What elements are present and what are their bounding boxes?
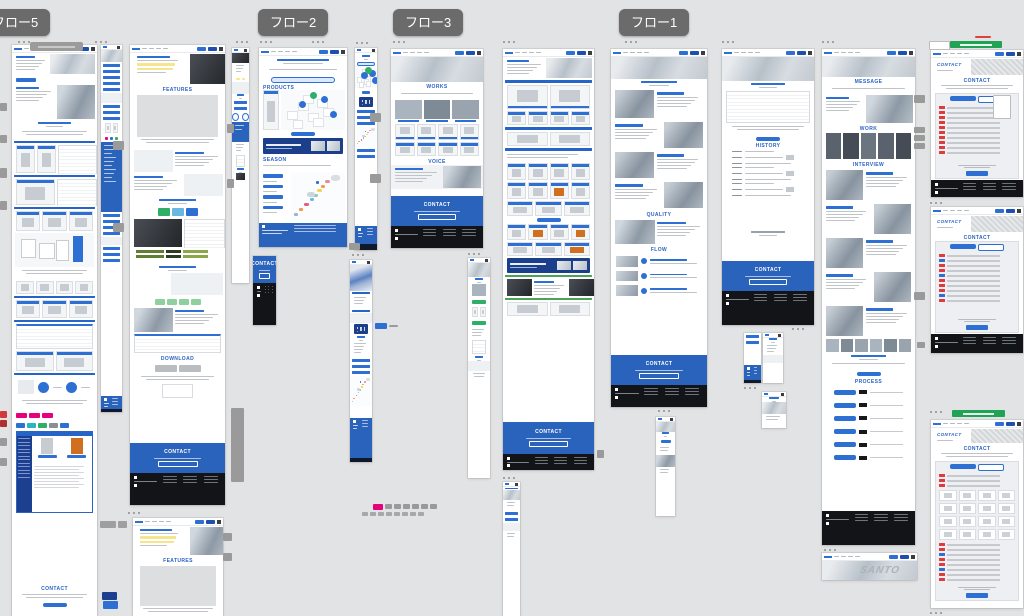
mini-ui-fragment (637, 52, 642, 53)
frame-flow3-detail-mobile[interactable] (468, 258, 490, 478)
mini-ui-fragment (615, 152, 654, 178)
annotation-chip[interactable] (113, 141, 124, 150)
annotation-chip[interactable] (914, 143, 925, 149)
mini-ui-fragment (353, 420, 356, 423)
mini-ui-fragment (294, 225, 337, 226)
mini-ui-fragment (664, 122, 703, 148)
mini-ui-fragment (263, 165, 331, 166)
mini-ui-fragment (352, 359, 370, 362)
mini-ui-fragment (367, 228, 374, 242)
mini-ui-fragment (983, 337, 1000, 350)
annotation-chip[interactable] (993, 95, 1011, 119)
frame-flow1-product-mobile[interactable] (503, 482, 520, 616)
mini-ui-fragment (662, 432, 669, 434)
mini-product-card (564, 242, 590, 256)
mini-ui-fragment: CONTACT (424, 202, 451, 209)
mini-ui-fragment (48, 306, 60, 314)
mini-ui-fragment (277, 59, 330, 61)
mini-ui-fragment (841, 339, 854, 352)
mini-image (350, 265, 372, 291)
mini-interview-row (822, 168, 915, 202)
mini-ui-fragment (963, 343, 976, 344)
mini-ui-fragment (732, 41, 734, 43)
annotation-chip[interactable] (100, 521, 116, 528)
mini-ui-fragment (939, 578, 1015, 581)
flow-label-2[interactable]: フロー2 (258, 9, 328, 36)
mini-ui-fragment (793, 300, 806, 301)
annotation-chip[interactable] (118, 521, 127, 528)
mini-ui-fragment (154, 458, 202, 459)
mini-ui-fragment (894, 517, 907, 518)
mini-ui-fragment (930, 411, 932, 413)
mini-ui-fragment (551, 167, 568, 180)
annotation-chip[interactable] (403, 504, 410, 509)
mini-ui-fragment (874, 514, 887, 515)
mini-product-card (507, 132, 548, 146)
frame-flow5-features-page-2[interactable]: FEATURES (133, 518, 223, 616)
annotation-chip[interactable] (223, 533, 232, 541)
mini-ui-fragment (551, 133, 590, 145)
annotation-chip[interactable] (223, 553, 232, 561)
frame-menu-dots[interactable] (930, 612, 942, 614)
frame-menu-dots[interactable] (930, 202, 942, 204)
mini-ui-fragment (362, 104, 363, 105)
mini-menu-icon (1017, 422, 1021, 426)
annotation-chip[interactable] (914, 95, 925, 103)
annotation-chip[interactable] (389, 325, 398, 327)
frame-menu-dots[interactable] (792, 328, 804, 330)
mini-section-bar (14, 296, 95, 298)
mini-ui-fragment (866, 251, 899, 252)
mini-ui-fragment (21, 239, 36, 258)
mini-ui-fragment (474, 310, 476, 315)
frame-menu-dots[interactable] (658, 410, 670, 412)
annotation-chip[interactable] (362, 512, 368, 516)
mini-ui-fragment (357, 327, 358, 329)
mini-ui-fragment (237, 168, 243, 170)
mini-ui-fragment (312, 41, 314, 43)
mini-ui-fragment (529, 167, 546, 180)
map-region (362, 384, 364, 386)
frame-menu-dots[interactable] (503, 477, 515, 479)
frame-flow5-detail-mobile[interactable] (232, 48, 249, 283)
mini-ui-fragment (464, 147, 474, 153)
mini-ui-fragment (657, 226, 701, 227)
mini-ui-fragment (940, 202, 942, 204)
mini-ui-fragment (983, 532, 991, 537)
mini-ui-fragment (512, 116, 521, 122)
frame-menu-dots[interactable] (352, 254, 364, 256)
frame-title-tab[interactable] (30, 42, 83, 51)
mini-ui-fragment (866, 316, 903, 317)
mini-ui-fragment (834, 400, 903, 410)
frame-flow1-company-mobile-footer[interactable] (744, 333, 761, 383)
mini-ui-fragment (995, 52, 1004, 56)
frame-flow2-top-mobile[interactable] (355, 48, 377, 250)
annotation-chip[interactable] (227, 179, 234, 188)
frame-menu-dots[interactable] (356, 42, 368, 44)
mini-ui-fragment (143, 608, 213, 609)
mini-menu-icon (778, 334, 781, 337)
mini-ui-fragment (287, 111, 298, 120)
mini-section-title: FEATURES (133, 556, 223, 566)
mini-interview-row (822, 202, 915, 236)
mini-ui-fragment (939, 474, 1015, 477)
annotation-chip[interactable] (103, 601, 118, 609)
mini-ui-fragment (786, 171, 794, 176)
mini-ui-fragment (959, 503, 977, 514)
mini-ui-fragment (554, 457, 567, 458)
mini-ui-fragment (186, 208, 198, 216)
mini-ui-fragment (155, 299, 165, 305)
frame-menu-dots[interactable] (722, 41, 734, 43)
mini-ui-fragment (947, 280, 1000, 282)
mini-product-card (105, 123, 111, 133)
mini-ui-fragment (330, 50, 339, 54)
mini-ui-fragment (998, 490, 1016, 501)
annotation-chip[interactable] (597, 450, 604, 458)
mini-ui-fragment (574, 463, 587, 464)
mini-ui-fragment (175, 162, 208, 163)
map-region (310, 198, 314, 201)
frame-flow1-about-page[interactable]: QUALITYFLOWCONTACT (611, 49, 707, 407)
mini-ui-fragment (43, 304, 65, 318)
annotation-chip[interactable] (975, 36, 991, 38)
frame-flow2-top-page[interactable]: PRODUCTSSEASON (259, 48, 347, 247)
mini-ui-fragment (183, 476, 197, 477)
mini-product-card (507, 201, 533, 216)
annotation-chip[interactable] (386, 512, 392, 516)
annotation-chip[interactable] (375, 323, 387, 329)
mini-menu-icon (117, 46, 120, 49)
mini-ui-fragment (615, 129, 657, 130)
annotation-chip[interactable] (370, 113, 381, 122)
mini-ui-fragment (615, 396, 618, 399)
mini-ui-fragment (16, 94, 47, 95)
mini-ui-fragment (822, 41, 824, 43)
mini-product-card (16, 300, 40, 318)
mini-ui-fragment (947, 290, 1000, 292)
frame-menu-dots[interactable] (95, 41, 107, 43)
mini-interview-row (822, 270, 915, 304)
mini-ui-fragment (266, 148, 292, 149)
mini-ui-fragment (508, 477, 510, 479)
mini-ui-fragment (843, 133, 858, 159)
flow-label-1[interactable]: フロー1 (619, 9, 689, 36)
mini-ui-fragment (939, 244, 1015, 251)
mini-ui-fragment (357, 122, 375, 125)
mini-ui-fragment (507, 58, 544, 78)
mini-ui-fragment (1002, 183, 1015, 184)
mini-ui-fragment (939, 319, 1015, 323)
mini-product-row (503, 162, 594, 181)
frame-flow5-top-page[interactable]: CONTACT (12, 45, 97, 616)
mini-ui-fragment (764, 393, 768, 395)
mini-ui-fragment (939, 274, 945, 277)
frame-menu-dots[interactable] (625, 41, 637, 43)
frame-flow1-recruit-page[interactable]: MESSAGEWORKINTERVIEWPROCESS (822, 49, 915, 545)
mini-heading-lines (822, 353, 915, 361)
annotation-chip[interactable] (412, 504, 419, 509)
annotation-chip[interactable] (370, 174, 381, 183)
mini-ui-fragment (137, 72, 166, 73)
mini-header (931, 50, 1023, 58)
mini-ui-fragment (754, 297, 767, 298)
mini-text-lines (12, 592, 97, 602)
mini-ui-fragment (834, 429, 856, 434)
mini-ui-fragment (354, 349, 363, 350)
frame-menu-dots[interactable] (822, 41, 834, 43)
mini-ui-fragment (983, 493, 991, 498)
annotation-chip[interactable] (0, 168, 7, 178)
mini-ui-fragment (171, 273, 223, 295)
mini-ui-fragment (554, 463, 567, 464)
annotation-chip[interactable] (385, 504, 392, 509)
mini-ui-fragment (166, 250, 181, 253)
mini-ui-fragment (855, 514, 868, 515)
annotation-chip[interactable] (113, 223, 124, 232)
flow-label-5[interactable]: フロー5 (0, 9, 50, 36)
mini-indicator-bars (130, 248, 225, 264)
annotation-chip[interactable] (0, 420, 7, 427)
mini-heading-lines (130, 197, 225, 205)
mini-ui-fragment (536, 246, 560, 256)
annotation-chip[interactable] (421, 504, 428, 509)
frame-flow1-company-page[interactable]: HISTORYCONTACT (722, 49, 814, 325)
annotation-chip[interactable] (914, 127, 925, 133)
frame-menu-dots[interactable] (393, 41, 405, 43)
mini-ui-fragment (935, 188, 958, 189)
mini-ui-fragment (939, 121, 945, 124)
mini-ui-fragment (163, 476, 180, 502)
frame-flow2-detail-mobile[interactable] (350, 260, 372, 462)
frame-flow5-footer-mobile[interactable]: CONTACT (253, 256, 276, 325)
annotation-chip[interactable] (914, 292, 925, 300)
mini-ui-fragment (826, 217, 859, 218)
mini-ui-fragment (443, 229, 460, 245)
mini-ui-fragment (43, 603, 67, 607)
frame-flow1-recruit-hero[interactable]: SANTO (822, 553, 917, 580)
mini-ui-fragment (533, 188, 542, 196)
mini-ui-fragment (939, 254, 1015, 257)
mini-ui-fragment (138, 512, 140, 514)
mini-ui-fragment (826, 522, 829, 525)
mini-ui-fragment (574, 457, 587, 458)
mini-ui-fragment (263, 206, 283, 210)
annotation-chip[interactable] (0, 438, 7, 446)
mini-menu-icon (219, 47, 223, 51)
mini-ui-fragment (939, 578, 945, 581)
map-region (294, 213, 298, 216)
frame-menu-dots[interactable] (468, 253, 480, 255)
mini-footer-blue (259, 223, 347, 247)
annotation-chip[interactable] (402, 512, 408, 516)
mini-ui-fragment (112, 398, 119, 407)
mini-ui-fragment (104, 169, 116, 170)
mini-ui-fragment (751, 231, 786, 233)
mini-ui-fragment (939, 111, 945, 114)
mini-product-card (571, 224, 590, 240)
mini-ui-fragment (38, 382, 49, 393)
frame-menu-dots[interactable] (236, 41, 248, 43)
mini-ui-fragment (257, 286, 260, 289)
mini-ui-fragment (732, 151, 742, 152)
mini-ui-fragment (722, 237, 814, 261)
mini-ui-fragment (393, 41, 395, 43)
mini-ui-fragment (826, 285, 859, 286)
annotation-chip[interactable] (373, 504, 383, 510)
mini-ui-fragment (551, 115, 568, 125)
frame-contact-product-form[interactable]: CONTACTCONTACT (931, 420, 1023, 608)
mini-ui-fragment (650, 288, 702, 293)
annotation-chip[interactable] (394, 504, 401, 509)
mini-chip-row (130, 296, 225, 307)
annotation-chip[interactable] (952, 410, 1005, 417)
mini-ui-fragment (136, 250, 219, 253)
frame-menu-dots[interactable] (930, 411, 942, 413)
mini-ui-fragment (263, 181, 277, 182)
mini-ui-fragment (34, 472, 84, 473)
mini-ui-fragment (896, 133, 911, 159)
frame-contact-confirm[interactable]: CONTACTCONTACT (931, 207, 1023, 353)
mini-ui-fragment (26, 134, 82, 135)
mini-ui-fragment (957, 423, 962, 424)
annotation-chip[interactable] (950, 41, 1002, 48)
design-canvas: フロー5 フロー2 フロー3 フロー1 CONTACTFEATURESDOWNL… (0, 0, 1024, 616)
frame-menu-dots[interactable] (824, 549, 836, 551)
annotation-chip[interactable] (0, 135, 7, 143)
mini-ui-fragment (559, 90, 580, 102)
annotation-chip[interactable] (430, 504, 437, 509)
mini-ui-fragment (41, 438, 53, 454)
frame-menu-dots[interactable] (744, 387, 756, 389)
mini-image (101, 93, 122, 103)
mini-ui-fragment: FEATURES (130, 85, 225, 94)
mini-ui-fragment (824, 549, 826, 551)
mini-ui-fragment (513, 247, 526, 253)
mini-ui-fragment (899, 339, 912, 352)
mini-section-bar (14, 373, 95, 375)
annotation-chip[interactable] (231, 408, 244, 482)
mini-ui-fragment (983, 183, 1000, 194)
mini-ui-fragment (529, 115, 546, 125)
mini-ui-fragment (939, 548, 1015, 551)
mini-ui-fragment (237, 94, 243, 96)
mini-ui-fragment (615, 192, 653, 193)
mini-ui-fragment (354, 303, 363, 304)
mini-ui-fragment (16, 63, 42, 64)
mini-ui-fragment (754, 294, 771, 322)
mini-ui-fragment (322, 41, 324, 43)
annotation-chip[interactable] (0, 201, 7, 210)
frame-flow1-about-mobile[interactable] (656, 417, 675, 516)
mini-ui-fragment (939, 131, 1015, 134)
mini-ui-fragment (657, 162, 695, 163)
mini-ui-fragment (826, 272, 871, 302)
frame-flow1-company-mobile-2[interactable] (762, 392, 786, 428)
frame-menu-dots[interactable] (312, 41, 324, 43)
mini-table (472, 340, 486, 354)
mini-ui-fragment (939, 553, 1015, 556)
mini-ui-fragment (766, 419, 778, 420)
mini-ui-fragment (472, 321, 486, 325)
frame-flow3-top-page[interactable]: WORKSVOICECONTACT (391, 49, 483, 248)
frame-menu-dots[interactable] (260, 41, 272, 43)
annotation-chip[interactable] (0, 103, 7, 111)
mini-ui-fragment (364, 327, 365, 332)
mini-table (134, 334, 221, 353)
mini-ui-fragment (874, 520, 887, 521)
mini-blue-block (232, 122, 249, 142)
annotation-chip[interactable] (349, 243, 360, 250)
flow-label-3[interactable]: フロー3 (393, 9, 463, 36)
annotation-chip[interactable] (0, 458, 7, 466)
mini-ui-fragment (134, 186, 167, 187)
annotation-chip[interactable] (227, 124, 234, 133)
annotation-chip[interactable] (917, 342, 925, 348)
mini-ui-fragment (365, 100, 366, 105)
frame-menu-dots[interactable] (503, 41, 515, 43)
annotation-chip[interactable] (394, 512, 400, 516)
mini-ui-fragment (747, 372, 750, 373)
mini-text-lines (722, 124, 814, 136)
annotation-chip[interactable] (378, 512, 384, 516)
mini-ui-fragment (367, 228, 373, 229)
frame-menu-dots[interactable] (18, 41, 30, 43)
mini-ui-fragment (517, 135, 538, 142)
annotation-chip[interactable] (914, 135, 925, 141)
mini-ui-fragment (522, 52, 527, 53)
mini-photo-row (468, 283, 490, 297)
mini-section-title: CONTACT (931, 444, 1023, 451)
mini-ui-fragment (16, 54, 48, 74)
mini-ui-fragment (134, 476, 160, 502)
mini-ui-fragment (576, 188, 585, 196)
frame-flow5-features-page[interactable]: FEATURESDOWNLOADCONTACT (130, 45, 225, 505)
annotation-chip[interactable] (370, 512, 376, 516)
frame-contact-input[interactable]: CONTACTCONTACT (931, 50, 1023, 197)
mini-ui-fragment (183, 255, 208, 258)
mini-ui-fragment (834, 413, 903, 423)
mini-text-lines (822, 361, 915, 370)
mini-ui-fragment (572, 228, 589, 240)
mini-ui-fragment (352, 371, 370, 374)
mini-ui-fragment (265, 286, 266, 325)
mini-ui-fragment (613, 52, 621, 54)
mini-ui-fragment (421, 127, 431, 134)
frame-flow1-company-mobile[interactable] (763, 333, 783, 383)
mini-ui-fragment (190, 527, 223, 555)
mini-ui-fragment (964, 167, 991, 168)
mini-ui-fragment (103, 232, 120, 235)
mini-ui-fragment (67, 455, 86, 458)
mini-ui-fragment (246, 41, 248, 43)
annotation-chip[interactable] (102, 592, 117, 600)
mini-ui-fragment (939, 503, 957, 514)
mini-heading-lines (12, 120, 97, 129)
frame-menu-dots[interactable] (128, 512, 140, 514)
annotation-chip[interactable] (418, 512, 424, 516)
mini-ui-fragment (664, 182, 703, 208)
annotation-chip[interactable] (0, 411, 7, 418)
mini-ui-fragment (570, 247, 583, 253)
mini-ui-fragment (947, 549, 1000, 551)
annotation-chip[interactable] (929, 41, 950, 50)
annotation-chip[interactable] (410, 512, 416, 516)
mini-ui-fragment (18, 477, 30, 478)
mini-ui-fragment: CONTACT (935, 59, 969, 75)
frame-flow1-product-page[interactable]: CONTACT (503, 49, 594, 470)
